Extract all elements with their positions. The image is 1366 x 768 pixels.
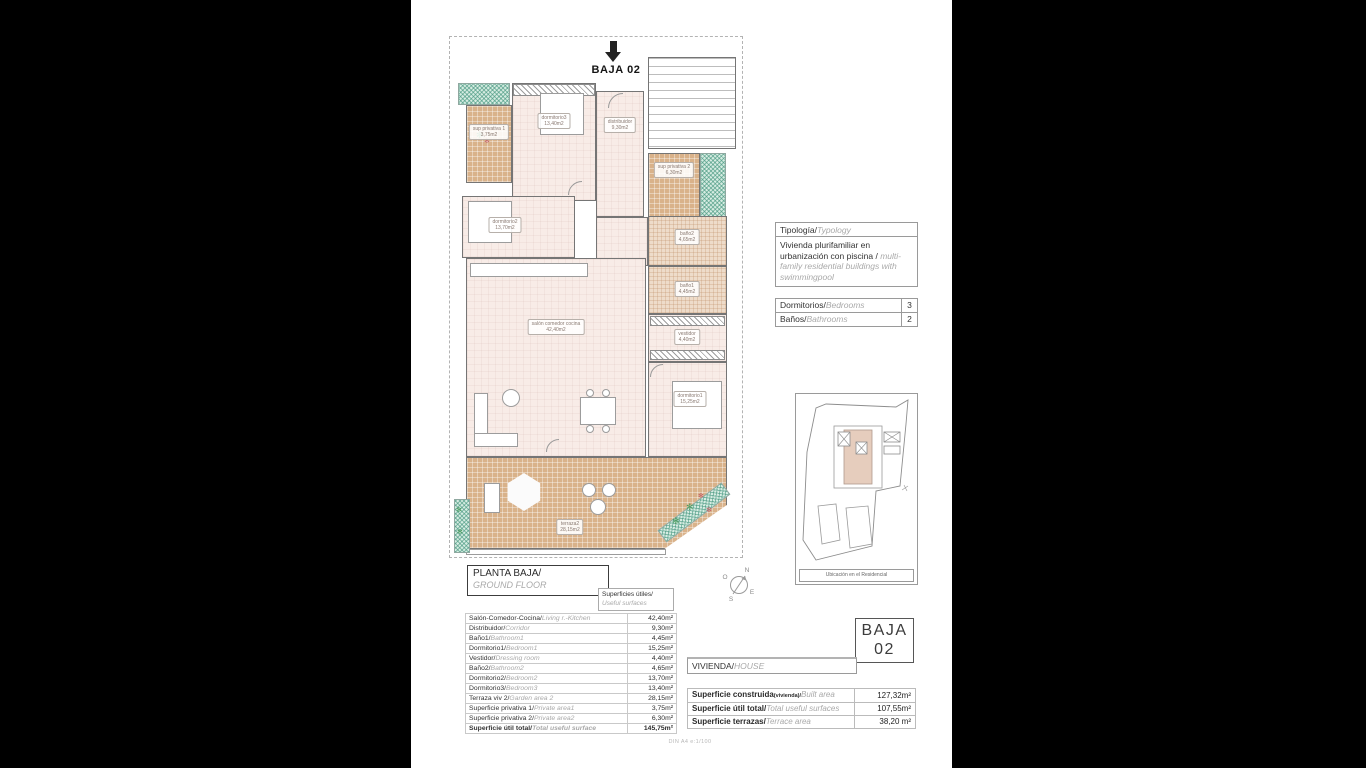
plant-icon: ✻ <box>672 517 680 525</box>
typology-box: Tipología/Typology Vivienda plurifamilia… <box>775 222 918 287</box>
room-distribuidor <box>596 91 644 217</box>
terrace-area-value: 38,20 m² <box>855 716 916 729</box>
site-location-map: Ubicación en el Residencial <box>795 393 918 585</box>
vivienda-label-box: VIVIENDA/HOUSE <box>687 657 857 674</box>
down-arrow-icon <box>605 52 621 62</box>
unit-badge: BAJA 02 <box>855 618 914 663</box>
side-table <box>502 389 520 407</box>
surface-summary-table: Superficie construida(vivienda)/Built ar… <box>687 688 916 729</box>
area-value: 42,40m² <box>628 614 677 624</box>
table-row: Dormitorio1/Bedroom115,25m² <box>466 644 677 654</box>
area-value: 9,30m² <box>628 624 677 634</box>
table-row: Superficie privativa 1/Private area13,75… <box>466 704 677 714</box>
terrace-table <box>590 499 606 515</box>
terrace-chair <box>582 483 596 497</box>
table-row: Distribuidor/Corridor9,30m² <box>466 624 677 634</box>
room-label: sup privativa 26,30m2 <box>654 162 694 178</box>
room-label: sup privativa 13,75m2 <box>469 124 509 140</box>
area-value: 4,40m² <box>628 654 677 664</box>
area-value: 3,75m² <box>628 704 677 714</box>
area-value: 15,25m² <box>628 644 677 654</box>
table-row: Superficie construida(vivienda)/Built ar… <box>688 689 916 703</box>
floor-plan: BAJA 02 <box>449 36 743 558</box>
compass-n-label: N <box>745 567 750 574</box>
plant-icon: ✻ <box>457 529 463 537</box>
room-label: baño14,45m2 <box>675 281 700 297</box>
table-row: Superficie privativa 2/Private area26,30… <box>466 714 677 724</box>
table-row: Baño2/Bathroom24,65m² <box>466 664 677 674</box>
table-row: Vestidor/Dressing room4,40m² <box>466 654 677 664</box>
planter-top-left <box>458 83 510 105</box>
room-label: distribuidor9,30m2 <box>604 117 636 133</box>
useful-surfaces-header: Superficies útiles/ Useful surfaces <box>598 588 674 611</box>
wardrobe-hatch <box>650 350 725 360</box>
bedrooms-count: 3 <box>901 299 917 312</box>
unit-badge-line2: 02 <box>856 640 913 659</box>
compass-s-label: S <box>729 596 734 603</box>
typology-description: Vivienda plurifamiliar en urbanización c… <box>776 237 917 286</box>
compass-rose: N E S O <box>709 553 769 613</box>
room-label: dormitorio313,40m2 <box>537 113 570 129</box>
sofa <box>474 433 518 447</box>
compass-o-label: O <box>722 574 727 581</box>
area-value: 13,40m² <box>628 684 677 694</box>
site-map-drawing <box>796 394 917 568</box>
staircase <box>648 57 736 149</box>
canvas-background: { "icons": { "plant": "✻" }, "scale_note… <box>0 0 1366 768</box>
table-row: Salón-Comedor-Cocina/Living r.-Kitchen42… <box>466 614 677 624</box>
built-area-value: 127,32m² <box>855 689 916 703</box>
sofa <box>474 393 488 437</box>
floor-title-box: PLANTA BAJA/ GROUND FLOOR <box>467 565 609 596</box>
down-arrow-icon <box>610 41 617 52</box>
useful-area-value: 107,55m² <box>855 703 916 716</box>
table-row: Dormitorio3/Bedroom313,40m² <box>466 684 677 694</box>
area-value: 13,70m² <box>628 674 677 684</box>
plant-icon: ✻ <box>706 507 712 515</box>
floor-title-es: PLANTA BAJA/ <box>473 568 608 580</box>
table-row-total: Superficie útil total/Total useful surfa… <box>466 724 677 734</box>
scale-note: DIN A4 e:1/100 <box>560 739 820 745</box>
room-label: baño24,65m2 <box>675 229 700 245</box>
plant-icon: ✻ <box>456 507 462 515</box>
table-row: Superficie terrazas/Terrace area 38,20 m… <box>688 716 916 729</box>
rooms-count-table: Dormitorios/Bedrooms 3 Baños/Bathrooms 2 <box>775 298 918 327</box>
chair <box>586 389 594 397</box>
kitchen-counter <box>470 263 588 277</box>
useful-surfaces-table: Salón-Comedor-Cocina/Living r.-Kitchen42… <box>465 613 677 734</box>
table-row: Baños/Bathrooms 2 <box>776 312 917 326</box>
site-map-caption: Ubicación en el Residencial <box>799 569 914 582</box>
area-value: 6,30m² <box>628 714 677 724</box>
dining-table <box>580 397 616 425</box>
chair <box>602 425 610 433</box>
chair <box>602 389 610 397</box>
area-value: 4,65m² <box>628 664 677 674</box>
terrace-step <box>466 549 666 555</box>
typology-title: Tipología/Typology <box>776 223 917 237</box>
room-label: terraza228,15m2 <box>556 519 583 535</box>
area-value: 145,75m² <box>628 724 677 734</box>
unit-badge-line1: BAJA <box>856 621 913 640</box>
sun-lounger <box>484 483 500 513</box>
wardrobe-hatch <box>650 316 725 326</box>
compass-e-label: E <box>750 589 755 596</box>
table-row: Baño1/Bathroom14,45m² <box>466 634 677 644</box>
floor-title-en: GROUND FLOOR <box>473 580 608 591</box>
area-value: 28,15m² <box>628 694 677 704</box>
bathrooms-count: 2 <box>901 313 917 326</box>
table-row: Terraza viv 2/Garden area 228,15m² <box>466 694 677 704</box>
table-row: Superficie útil total/Total useful surfa… <box>688 703 916 716</box>
plant-icon: ✻ <box>698 493 704 501</box>
room-label: dormitorio115,25m2 <box>673 391 706 407</box>
plant-icon: ✻ <box>686 503 694 511</box>
room-label: dormitorio213,70m2 <box>488 217 521 233</box>
room-salon-comedor-cocina <box>466 258 646 457</box>
chair <box>586 425 594 433</box>
table-row: Dormitorio2/Bedroom213,70m² <box>466 674 677 684</box>
room-label: vestidor4,40m2 <box>674 329 700 345</box>
area-value: 4,45m² <box>628 634 677 644</box>
table-row: Dormitorios/Bedrooms 3 <box>776 299 917 312</box>
room-label: salón comedor cocina42,40m2 <box>528 319 585 335</box>
terrace-chair <box>602 483 616 497</box>
